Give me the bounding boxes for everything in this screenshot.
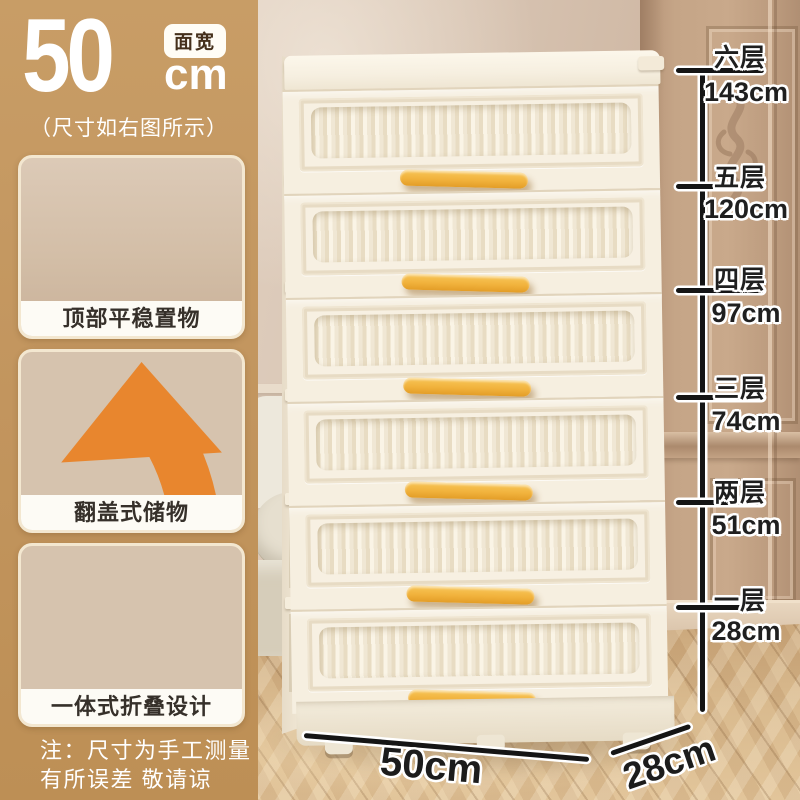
tier-label-1: 一层 (688, 581, 792, 617)
feature-card-folding-design: 一体式折叠设计 (18, 543, 245, 727)
slat-panel (314, 311, 635, 367)
product-infographic: 六层 143cm 五层 120cm 四层 97cm 三层 74cm 两层 51c… (0, 0, 800, 800)
info-panel: 50 面宽 cm （尺寸如右图所示） 顶部平稳置物 (0, 0, 258, 800)
tier-label-4: 四层 (688, 260, 792, 296)
disclaimer-line-2: 有所误差 敬请谅解！ (40, 762, 258, 800)
storage-cabinet-photo (282, 56, 706, 778)
tray-top-surface (18, 230, 245, 310)
tier-height-2: 51cm (692, 510, 800, 541)
tier-height-4: 97cm (692, 298, 800, 329)
tier-4 (286, 292, 664, 402)
feature-caption: 顶部平稳置物 (21, 301, 242, 336)
tier-2 (289, 500, 667, 610)
flip-door (307, 613, 652, 691)
tier-height-3: 74cm (692, 406, 800, 437)
flip-door (302, 301, 647, 379)
width-dimension-label: 50cm (378, 740, 484, 794)
flip-door (299, 93, 644, 171)
slat-panel (316, 414, 637, 470)
yellow-handle (400, 169, 528, 188)
tier-label-2: 两层 (688, 473, 792, 509)
tulip-flower (26, 155, 236, 192)
tier-label-5: 五层 (688, 158, 792, 194)
tier-label-6: 六层 (688, 38, 792, 74)
tulip-flower (25, 155, 237, 188)
feature-card-top-storage: 顶部平稳置物 (18, 155, 245, 339)
feature-card-flip-storage: 翻盖式储物 (18, 349, 245, 533)
cabinet-tiers (283, 84, 669, 702)
tier-height-1: 28cm (692, 616, 800, 647)
flower-stem (24, 155, 238, 185)
tulip-flower (36, 155, 227, 213)
slat-panel (317, 518, 638, 574)
tier-3 (287, 396, 665, 506)
tier-height-5: 120cm (692, 194, 800, 225)
slat-panel (311, 103, 632, 159)
flip-door (300, 197, 645, 275)
slat-panel (312, 207, 633, 263)
tier-6 (283, 84, 661, 194)
tier-label-3: 三层 (688, 369, 792, 405)
flip-door (304, 405, 649, 483)
flip-door (305, 509, 650, 587)
feature-caption: 翻盖式储物 (21, 495, 242, 530)
yellow-handle (401, 273, 529, 292)
feature-caption: 一体式折叠设计 (21, 689, 242, 724)
cabinet-front-face (282, 50, 669, 758)
disclaimer-line-1: 注：尺寸为手工测量 (40, 733, 252, 765)
width-value: 50 (22, 0, 111, 112)
lid-latch-clip (638, 56, 664, 70)
yellow-handle (403, 377, 531, 396)
yellow-handle (406, 585, 534, 604)
flower-stem (24, 155, 238, 185)
tier-5 (284, 188, 662, 298)
yellow-handle (405, 481, 533, 500)
slat-panel (319, 622, 640, 678)
size-subtitle: （尺寸如右图所示） (0, 112, 258, 142)
width-unit: cm (164, 50, 228, 100)
tier-height-6: 143cm (692, 77, 800, 108)
